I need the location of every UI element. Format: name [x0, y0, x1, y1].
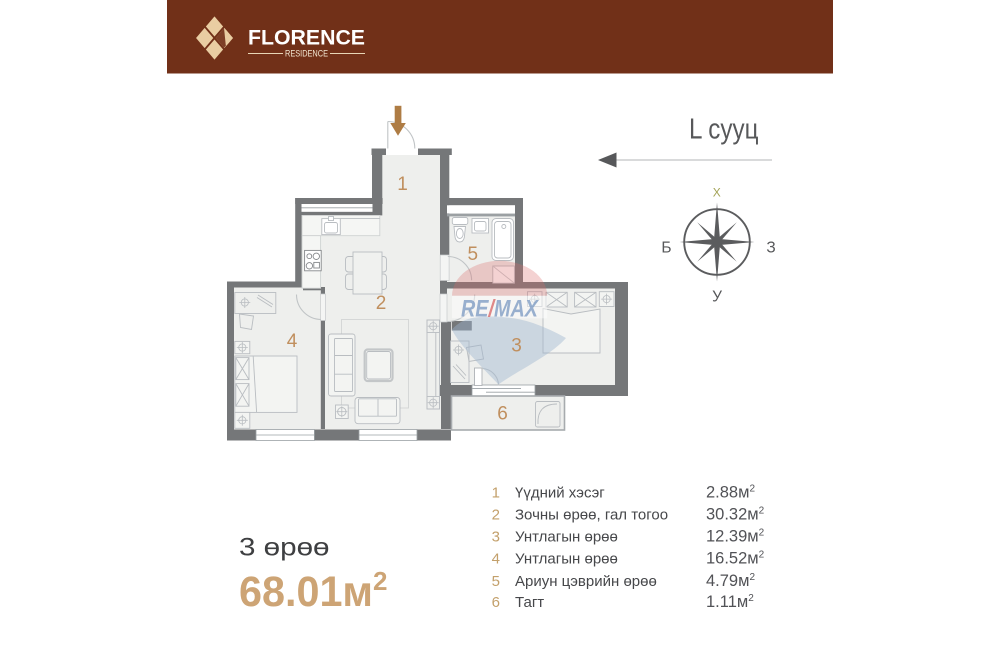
svg-text:Тагт: Тагт: [515, 594, 544, 611]
svg-text:З: З: [766, 240, 775, 257]
svg-text:6: 6: [497, 404, 508, 425]
svg-text:2: 2: [376, 293, 387, 314]
svg-text:2: 2: [492, 507, 500, 524]
svg-text:3: 3: [492, 529, 500, 546]
svg-text:Б: Б: [661, 240, 671, 257]
svg-text:4.79м2: 4.79м2: [706, 572, 755, 590]
svg-text:Унтлагын өрөө: Унтлагын өрөө: [515, 551, 618, 568]
svg-text:16.52м2: 16.52м2: [706, 550, 765, 568]
svg-text:Унтлагын өрөө: Унтлагын өрөө: [515, 529, 618, 546]
svg-text:RE/MAX: RE/MAX: [461, 296, 540, 323]
svg-text:FLORENCE: FLORENCE: [248, 26, 365, 50]
svg-text:У: У: [712, 289, 722, 306]
svg-text:2: 2: [373, 566, 387, 596]
svg-text:3 өрөө: 3 өрөө: [239, 534, 330, 562]
svg-text:3: 3: [511, 336, 522, 357]
svg-text:68.01м: 68.01м: [239, 569, 373, 616]
svg-text:Зочны өрөө, гал тогоо: Зочны өрөө, гал тогоо: [515, 507, 668, 524]
svg-text:30.32м2: 30.32м2: [706, 506, 765, 524]
svg-text:5: 5: [468, 244, 479, 265]
svg-text:5: 5: [492, 573, 500, 590]
svg-text:Ариун цэврийн өрөө: Ариун цэврийн өрөө: [515, 573, 657, 590]
svg-text:4: 4: [492, 551, 500, 568]
svg-text:1: 1: [492, 485, 500, 502]
svg-text:1.11м2: 1.11м2: [706, 593, 754, 611]
svg-text:6: 6: [492, 594, 500, 611]
svg-text:RESIDENCE: RESIDENCE: [285, 49, 328, 60]
svg-text:4: 4: [287, 331, 298, 352]
svg-text:Үүдний хэсэг: Үүдний хэсэг: [515, 485, 605, 502]
svg-text:X: X: [713, 186, 721, 200]
svg-text:L сууц: L сууц: [689, 114, 759, 146]
svg-text:2.88м2: 2.88м2: [706, 484, 755, 502]
svg-text:1: 1: [397, 174, 408, 195]
svg-text:12.39м2: 12.39м2: [706, 528, 765, 546]
